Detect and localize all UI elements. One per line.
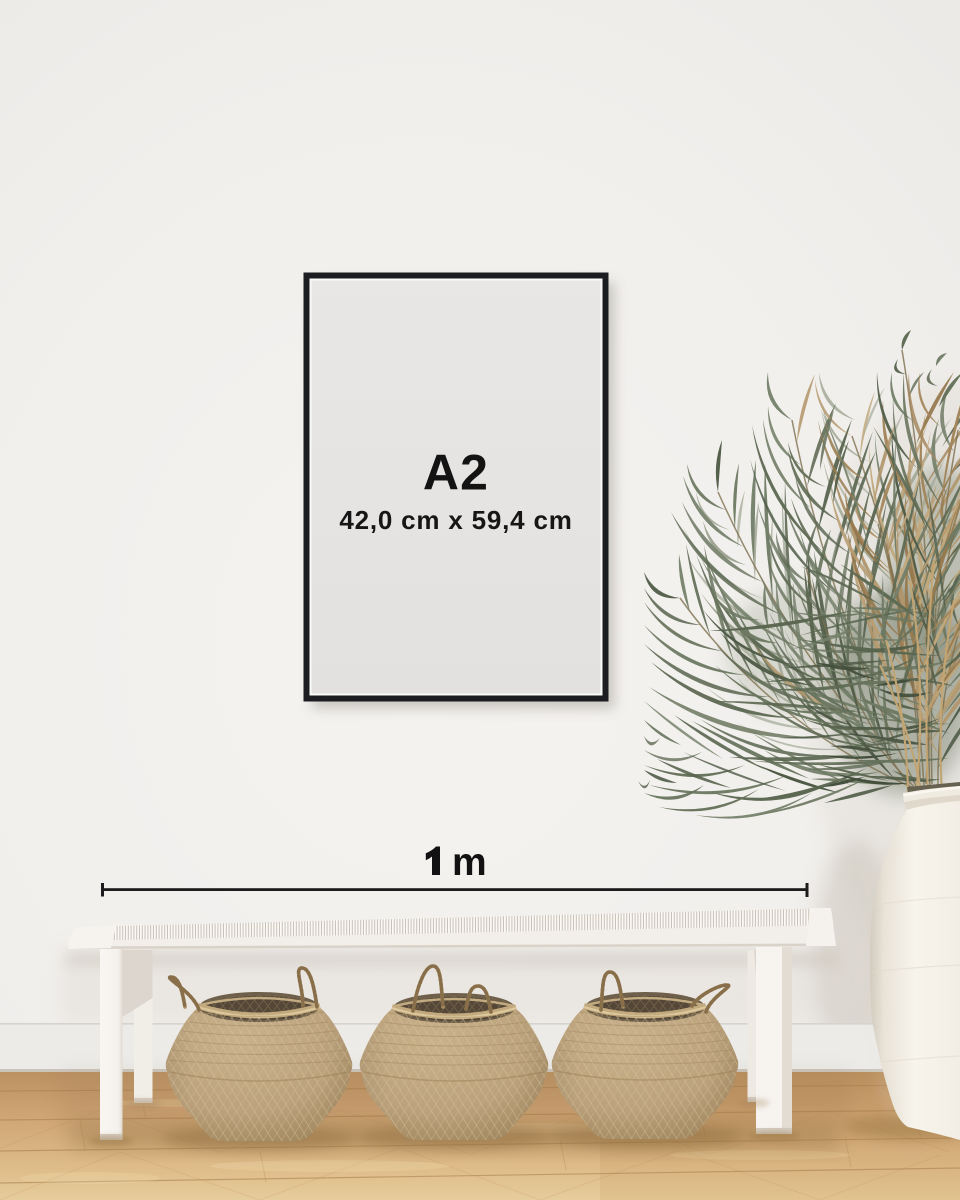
svg-text:A2: A2 — [423, 445, 489, 501]
svg-text:42,0 cm x 59,4 cm: 42,0 cm x 59,4 cm — [339, 505, 572, 535]
svg-text:m: m — [452, 841, 487, 884]
